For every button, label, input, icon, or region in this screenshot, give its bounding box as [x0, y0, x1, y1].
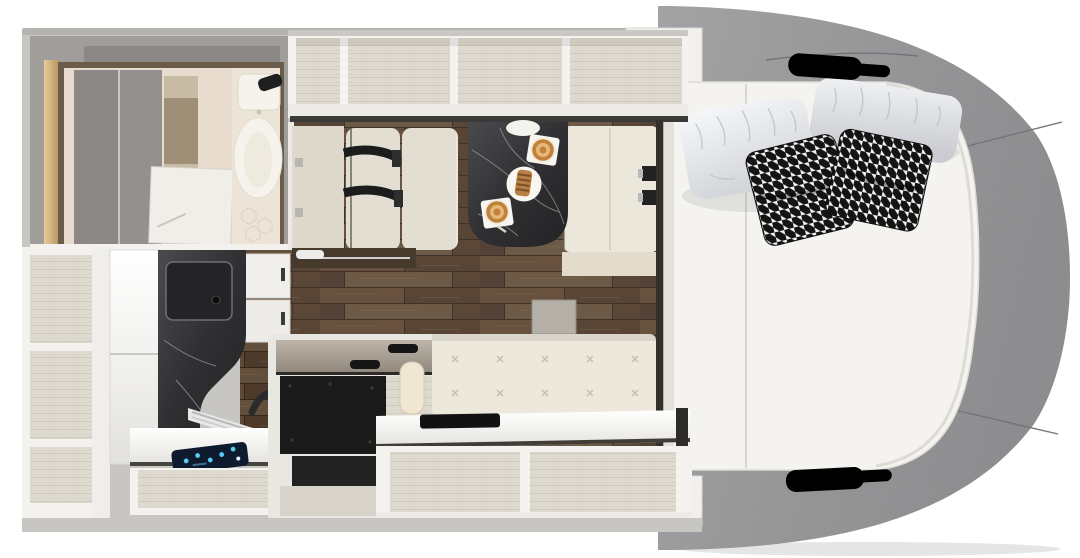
lower-compartment — [390, 452, 520, 512]
overhead-compartment — [348, 38, 450, 104]
wardrobe-door-left — [74, 70, 118, 244]
cabinet-handle — [281, 312, 285, 325]
houndstooth-pillow-right — [824, 127, 934, 233]
overhead-compartment — [458, 38, 562, 104]
black-appliance-lower — [292, 456, 386, 486]
island-handle — [388, 344, 418, 353]
cabinet-rail — [290, 116, 688, 122]
bottom-wall — [22, 518, 702, 532]
entry-step — [292, 248, 416, 268]
coffee-setting-top — [526, 134, 560, 166]
floor-hatch — [532, 300, 576, 334]
sofa-back-cushion — [432, 334, 656, 416]
overhead-compartment — [296, 38, 340, 104]
kitchen-sink — [166, 262, 232, 320]
shelf-compartment — [30, 351, 92, 439]
right-bench — [564, 126, 658, 252]
left-bench-backrest — [292, 126, 344, 252]
island-glass-top — [276, 340, 456, 375]
upper-cabinet-doors — [244, 254, 290, 342]
bathroom — [30, 36, 288, 256]
shelf-compartment — [30, 447, 92, 503]
lower-shelving — [376, 446, 692, 525]
living-bed-divider-trim — [656, 120, 663, 452]
bathroom-open-shelf — [164, 98, 198, 164]
counter-tray — [420, 413, 500, 428]
shelf-compartment — [30, 255, 92, 343]
belt-buckle — [642, 166, 658, 181]
belt-buckle — [394, 190, 403, 207]
light-strip — [44, 60, 60, 246]
left-shelving — [22, 247, 110, 525]
overhead-compartments — [296, 38, 682, 104]
belt-buckle — [642, 190, 658, 205]
rv-floorplan-image — [0, 0, 1080, 558]
cabinet-handle — [281, 268, 285, 281]
overhead-compartment — [570, 38, 682, 104]
dinette-table — [468, 120, 568, 247]
overhead-cabinets — [288, 30, 688, 122]
pastry-plate — [507, 167, 542, 202]
white-bowl — [506, 120, 540, 136]
toilet — [234, 74, 282, 198]
belt-buckle — [392, 150, 401, 167]
arched-niche — [400, 362, 424, 414]
shower-panel — [149, 167, 234, 246]
island-handle — [350, 360, 380, 369]
lower-compartment — [530, 452, 676, 512]
